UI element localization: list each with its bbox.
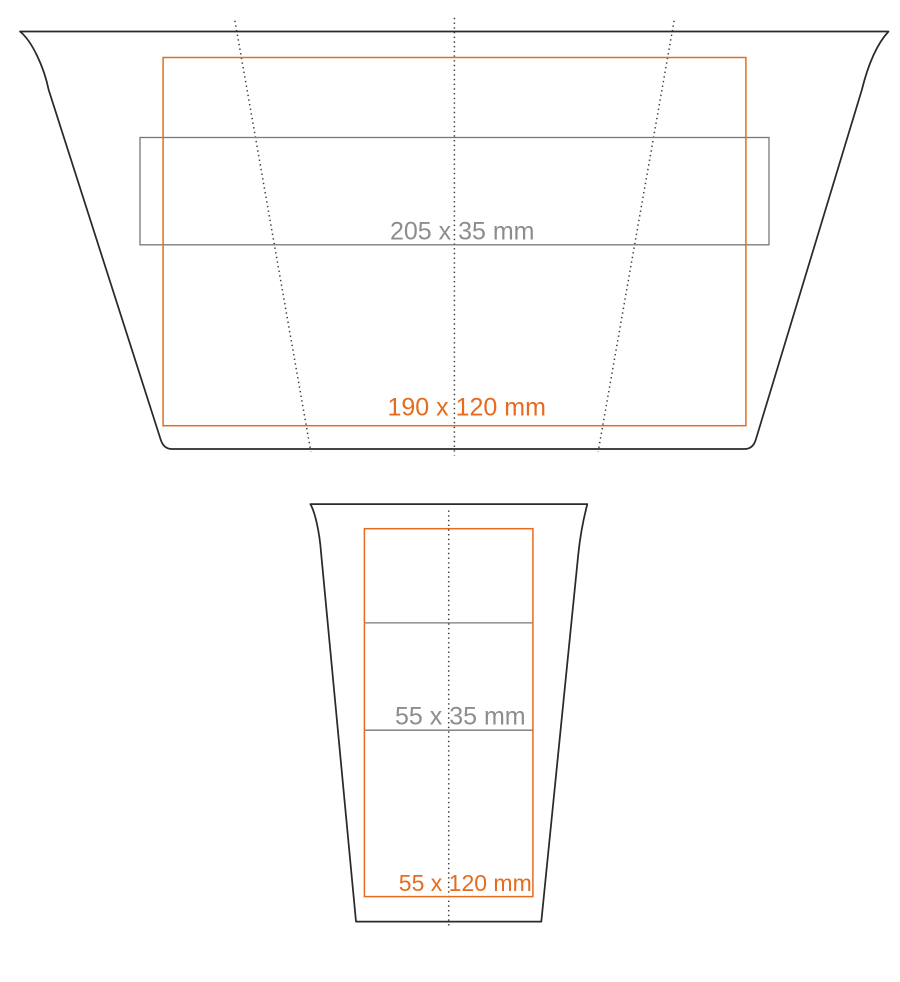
svg-text:190 x 120 mm: 190 x 120 mm: [388, 394, 546, 422]
svg-text:205 x 35 mm: 205 x 35 mm: [390, 218, 535, 246]
svg-text:55 x 120 mm: 55 x 120 mm: [399, 870, 532, 896]
svg-text:55 x 35 mm: 55 x 35 mm: [395, 703, 526, 731]
